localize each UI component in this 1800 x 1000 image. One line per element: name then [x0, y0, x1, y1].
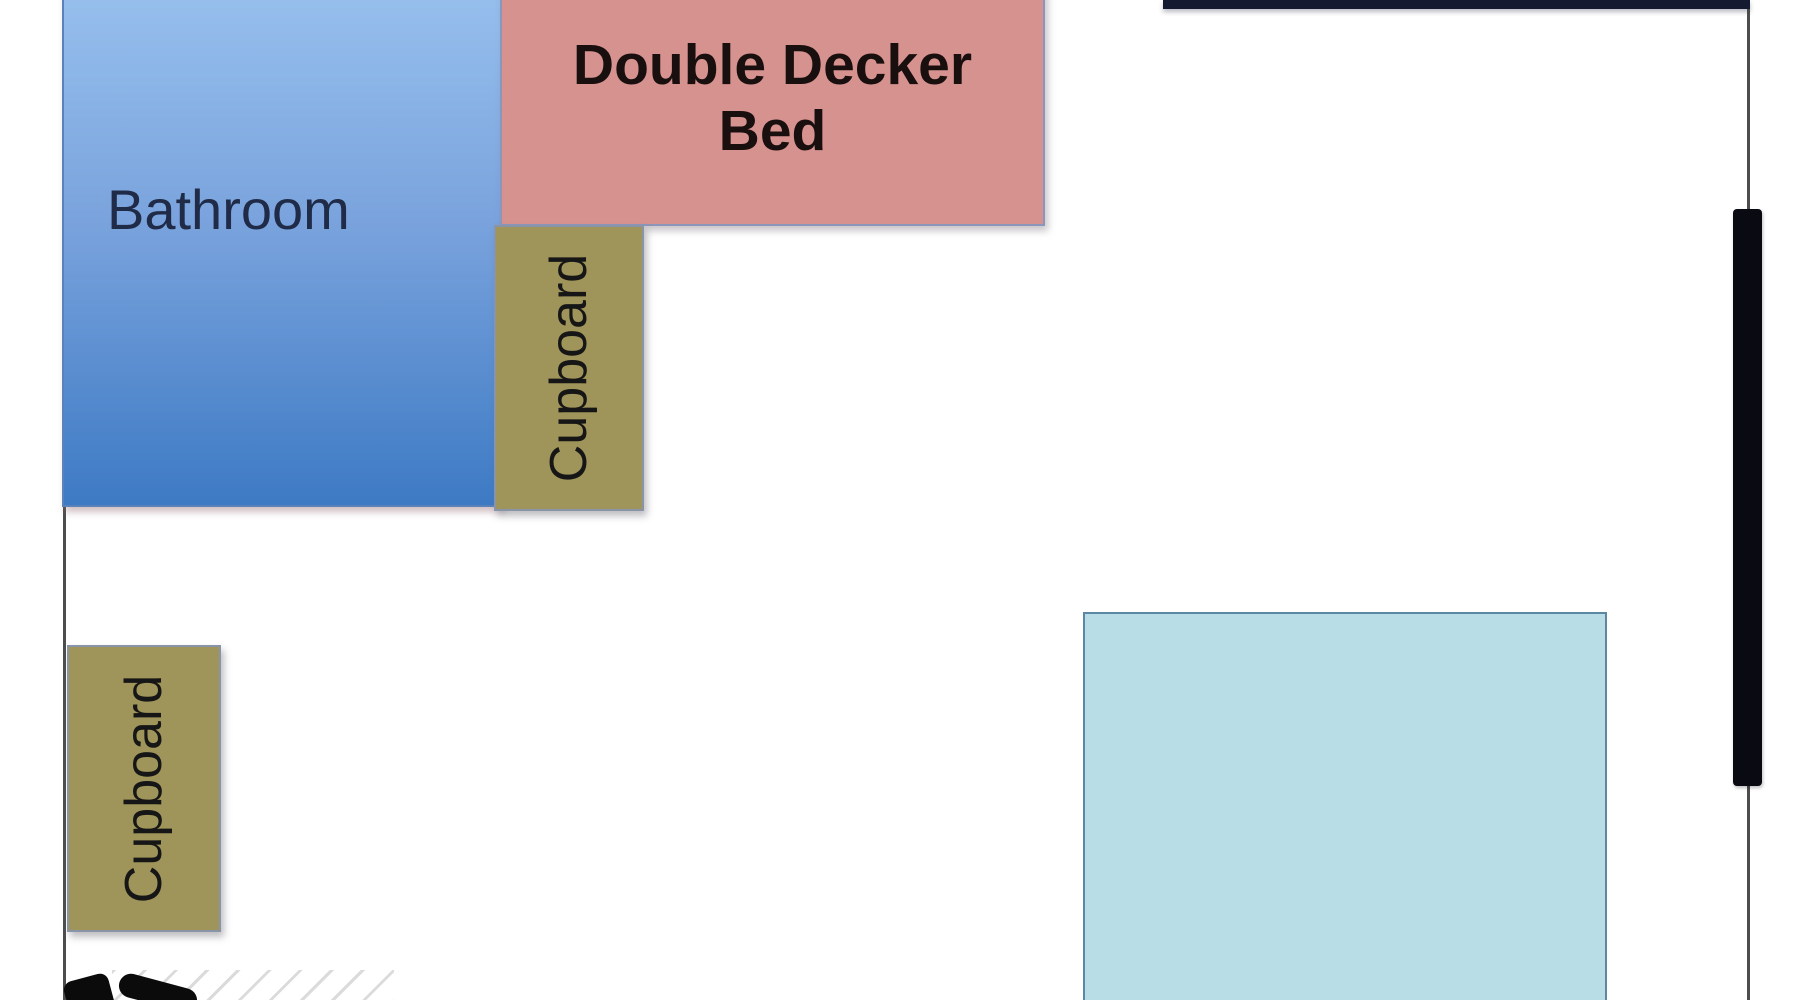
top-wall-line: [1163, 0, 1750, 9]
furniture-double-decker-bed: Double Decker Bed: [500, 0, 1045, 226]
double-decker-bed-label: Double Decker Bed: [543, 32, 1003, 164]
furniture-cupboard-right: Cupboard: [494, 225, 644, 511]
floor-plan: Bathroom Double Decker Bed Cupboard Cupb…: [0, 0, 1800, 1000]
unlabeled-area-rect: [1083, 612, 1607, 1000]
room-bathroom: Bathroom: [62, 0, 502, 507]
furniture-cupboard-left: Cupboard: [67, 645, 221, 932]
window-marker: [1733, 209, 1762, 786]
door-symbol-shape-1: [62, 972, 116, 1000]
bathroom-label: Bathroom: [107, 179, 350, 241]
cupboard-left-label: Cupboard: [118, 674, 170, 902]
cupboard-right-label: Cupboard: [543, 254, 595, 482]
